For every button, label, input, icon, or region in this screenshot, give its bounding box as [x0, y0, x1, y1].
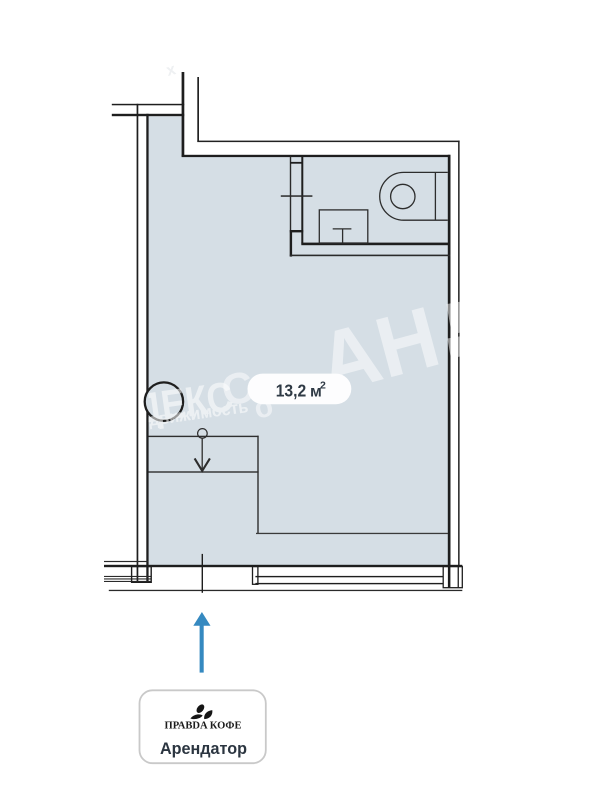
svg-text:Арендатор: Арендатор [160, 740, 247, 758]
svg-text:2: 2 [320, 379, 326, 391]
svg-text:ПРАВDA КОФЕ: ПРАВDA КОФЕ [165, 719, 242, 731]
svg-text:13,2: 13,2 [276, 380, 307, 400]
svg-text:х: х [165, 61, 178, 80]
